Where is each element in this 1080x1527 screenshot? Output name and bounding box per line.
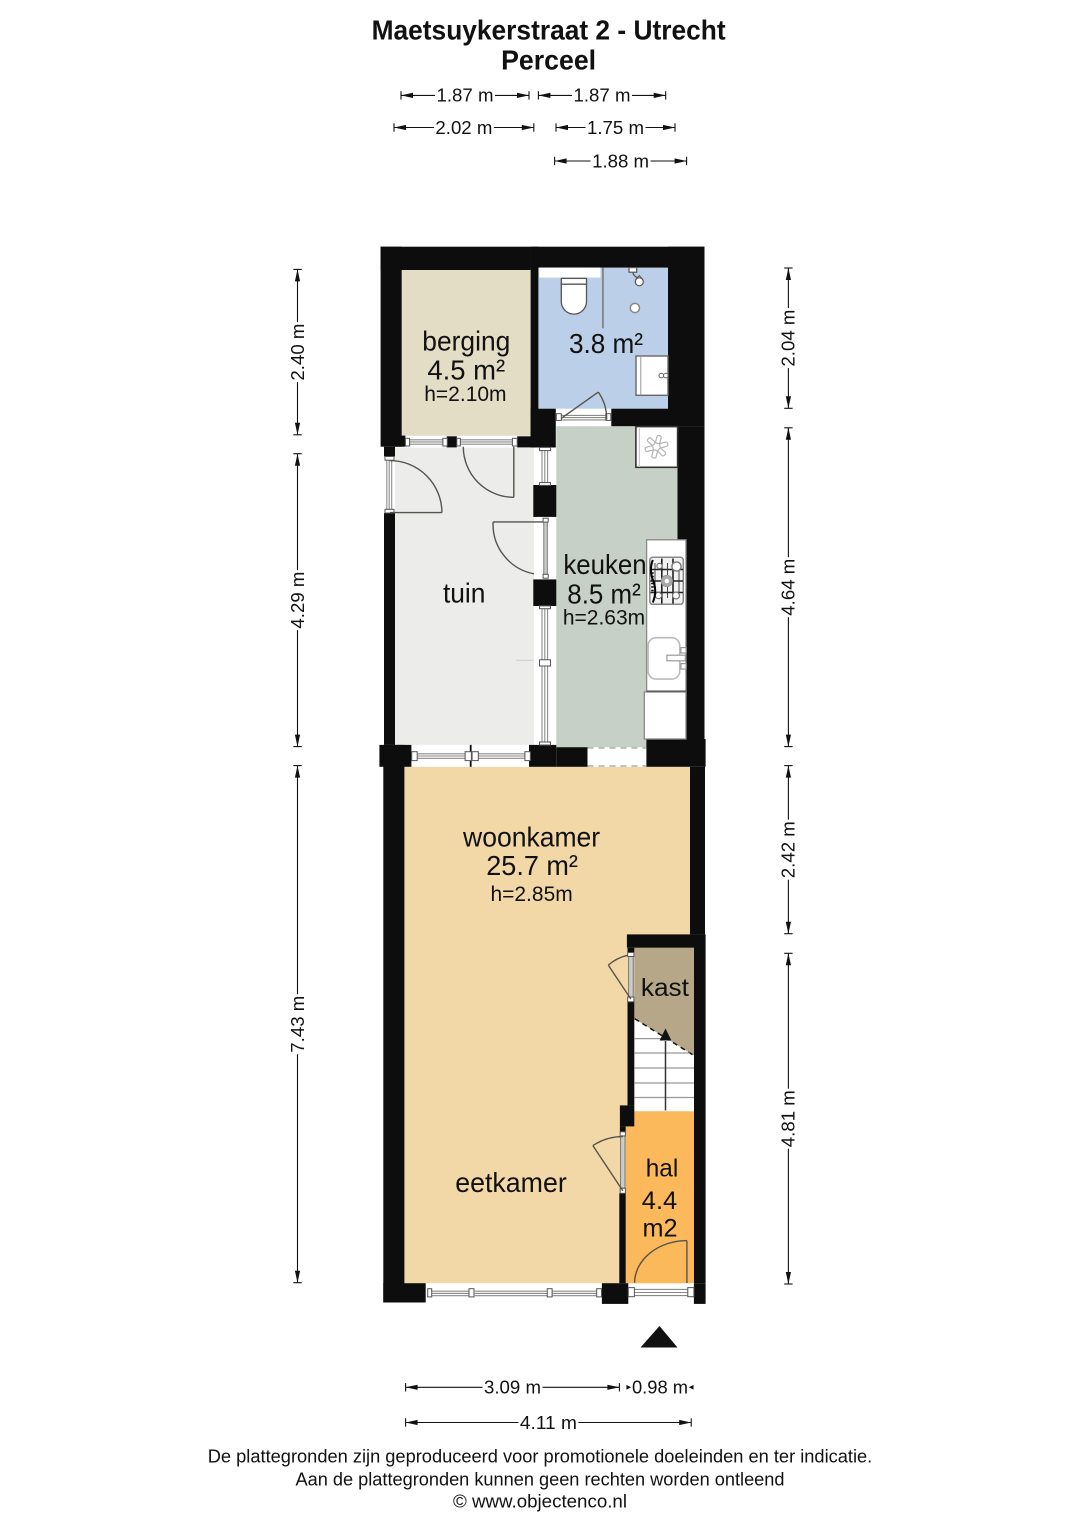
- svg-text:h=2.63m: h=2.63m: [563, 607, 645, 630]
- svg-text:1.88 m: 1.88 m: [592, 151, 649, 171]
- svg-text:2.04 m: 2.04 m: [779, 310, 799, 367]
- svg-text:woonkamer: woonkamer: [462, 822, 600, 853]
- svg-text:© www.objectenco.nl: © www.objectenco.nl: [453, 1491, 627, 1512]
- svg-text:4.11 m: 4.11 m: [520, 1413, 577, 1433]
- svg-text:1.87 m: 1.87 m: [574, 86, 631, 106]
- svg-text:Aan de plattegronden kunnen ge: Aan de plattegronden kunnen geen rechten…: [296, 1469, 785, 1490]
- svg-text:h=2.10m: h=2.10m: [424, 383, 506, 406]
- svg-text:tuin: tuin: [443, 578, 486, 609]
- svg-text:4.81 m: 4.81 m: [779, 1090, 799, 1147]
- svg-text:2.42 m: 2.42 m: [779, 821, 799, 878]
- svg-text:Perceel: Perceel: [501, 44, 596, 75]
- svg-text:hal: hal: [646, 1155, 679, 1183]
- svg-text:8.5 m²: 8.5 m²: [567, 579, 640, 610]
- svg-text:0.98 m: 0.98 m: [632, 1378, 688, 1398]
- svg-text:4.64 m: 4.64 m: [779, 559, 799, 616]
- svg-text:kast: kast: [641, 974, 689, 1002]
- svg-text:keuken: keuken: [563, 549, 646, 580]
- svg-text:1.75 m: 1.75 m: [587, 118, 644, 138]
- svg-text:3.8 m²: 3.8 m²: [569, 328, 643, 359]
- svg-text:2.02 m: 2.02 m: [435, 118, 492, 138]
- svg-text:4.29 m: 4.29 m: [288, 572, 308, 629]
- svg-text:2.40 m: 2.40 m: [288, 324, 308, 381]
- svg-text:m2: m2: [643, 1215, 678, 1243]
- svg-text:4.4: 4.4: [642, 1187, 677, 1215]
- svg-text:7.43 m: 7.43 m: [288, 996, 308, 1053]
- svg-text:4.5 m²: 4.5 m²: [427, 355, 505, 386]
- svg-text:1.87 m: 1.87 m: [437, 86, 494, 106]
- svg-text:25.7 m²: 25.7 m²: [486, 850, 578, 881]
- svg-text:De plattegronden zijn geproduc: De plattegronden zijn geproduceerd voor …: [208, 1446, 873, 1467]
- svg-text:h=2.85m: h=2.85m: [490, 883, 572, 906]
- svg-text:berging: berging: [422, 326, 510, 357]
- svg-text:eetkamer: eetkamer: [455, 1167, 567, 1198]
- svg-text:Maetsuykerstraat 2 - Utrecht: Maetsuykerstraat 2 - Utrecht: [372, 14, 726, 45]
- svg-text:3.09 m: 3.09 m: [484, 1378, 541, 1398]
